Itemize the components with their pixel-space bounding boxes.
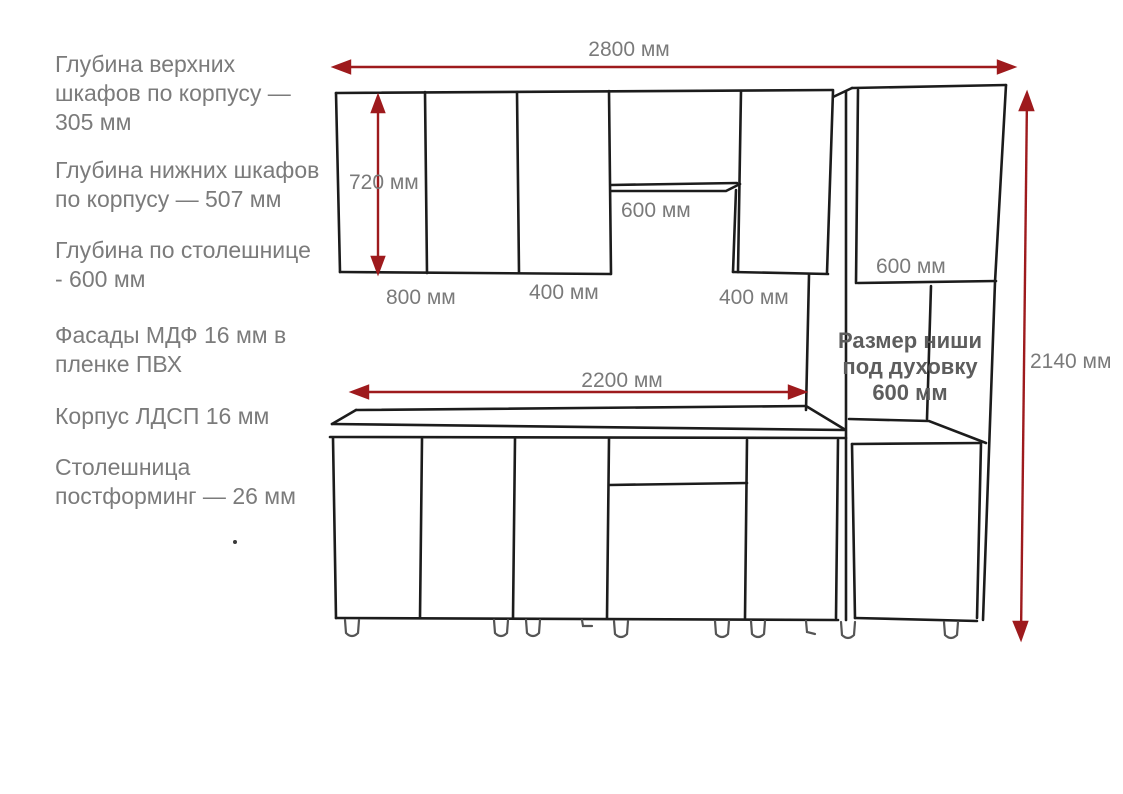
label-cabinet-400-left: 400 мм: [529, 281, 599, 305]
label-countertop-width: 2200 мм: [552, 369, 692, 393]
kitchen-drawing-page: Глубина верхних шкафов по корпусу — 305 …: [0, 0, 1123, 794]
oven-niche-line: Размер ниши: [826, 328, 994, 354]
label-total-height: 2140 мм: [1030, 350, 1111, 374]
oven-niche-line: под духовку: [826, 354, 994, 380]
oven-niche-line: 600 мм: [826, 380, 994, 406]
oven-niche-annotation: Размер ниши под духовку 600 мм: [826, 328, 994, 406]
label-total-width: 2800 мм: [559, 38, 699, 62]
label-hood-gap: 600 мм: [621, 199, 691, 223]
label-upper-height: 720 мм: [349, 171, 419, 195]
label-cabinet-800: 800 мм: [386, 286, 456, 310]
label-niche-width: 600 мм: [876, 255, 946, 279]
cabinet-legs: [345, 620, 958, 638]
label-cabinet-400-right: 400 мм: [719, 286, 789, 310]
arrow-total-width: [334, 61, 1014, 73]
